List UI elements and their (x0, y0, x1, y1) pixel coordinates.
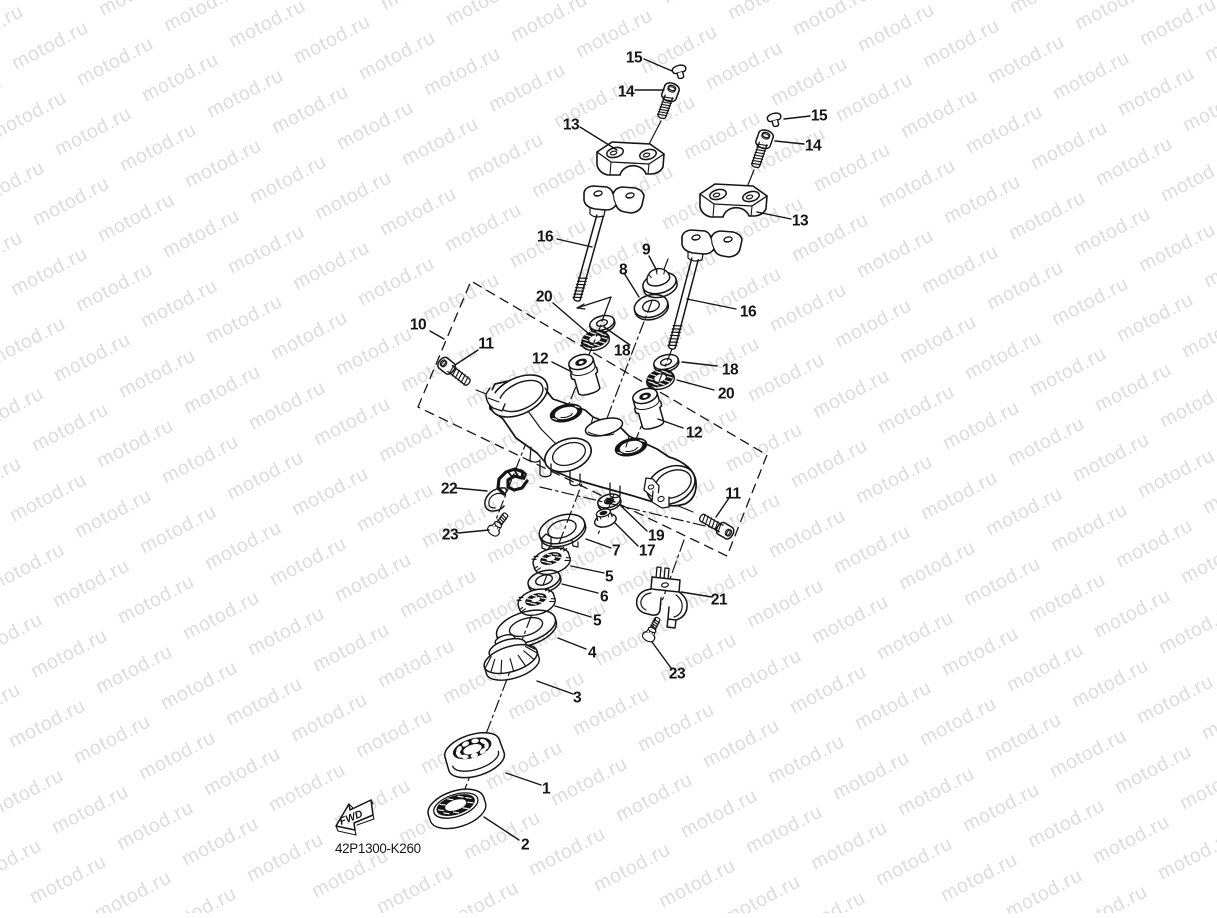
svg-text:15: 15 (626, 50, 643, 67)
svg-text:12: 12 (686, 425, 702, 442)
svg-text:2: 2 (521, 837, 529, 854)
svg-text:23: 23 (442, 527, 459, 544)
svg-text:5: 5 (593, 613, 602, 630)
svg-text:6: 6 (600, 589, 609, 606)
svg-text:42P1300-K260: 42P1300-K260 (335, 841, 421, 856)
svg-text:9: 9 (642, 242, 651, 259)
svg-text:22: 22 (441, 481, 457, 498)
svg-text:18: 18 (722, 362, 739, 379)
svg-text:8: 8 (619, 262, 628, 279)
svg-text:14: 14 (618, 84, 635, 101)
svg-text:3: 3 (573, 690, 582, 707)
svg-text:11: 11 (478, 336, 494, 353)
svg-text:10: 10 (410, 317, 426, 334)
svg-text:20: 20 (536, 289, 552, 306)
svg-text:12: 12 (532, 351, 548, 368)
svg-text:18: 18 (614, 343, 631, 360)
svg-text:21: 21 (711, 592, 728, 609)
svg-text:4: 4 (588, 645, 597, 662)
svg-text:14: 14 (805, 138, 822, 155)
svg-text:1: 1 (542, 781, 551, 798)
svg-text:17: 17 (639, 543, 655, 560)
svg-text:20: 20 (718, 386, 734, 403)
svg-text:19: 19 (648, 528, 665, 545)
svg-text:23: 23 (669, 666, 686, 683)
svg-text:16: 16 (740, 304, 757, 321)
svg-text:15: 15 (811, 108, 828, 125)
svg-text:13: 13 (563, 117, 580, 134)
svg-text:5: 5 (605, 569, 614, 586)
svg-text:16: 16 (537, 229, 554, 246)
svg-text:13: 13 (792, 213, 809, 230)
svg-text:11: 11 (725, 486, 741, 503)
svg-text:7: 7 (612, 543, 620, 560)
